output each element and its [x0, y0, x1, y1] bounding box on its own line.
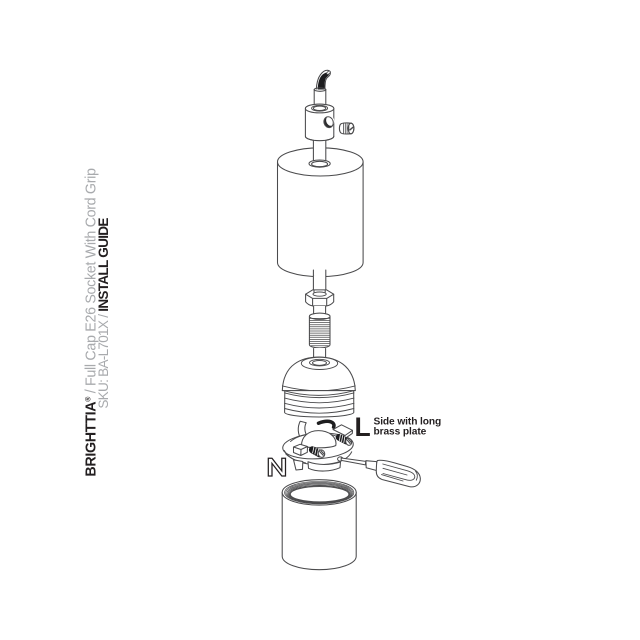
svg-text:L: L [355, 412, 371, 442]
svg-text:SKU: BA-L701X / INSTALL GUIDE: SKU: BA-L701X / INSTALL GUIDE [96, 218, 111, 409]
svg-text:brass plate: brass plate [374, 426, 427, 437]
